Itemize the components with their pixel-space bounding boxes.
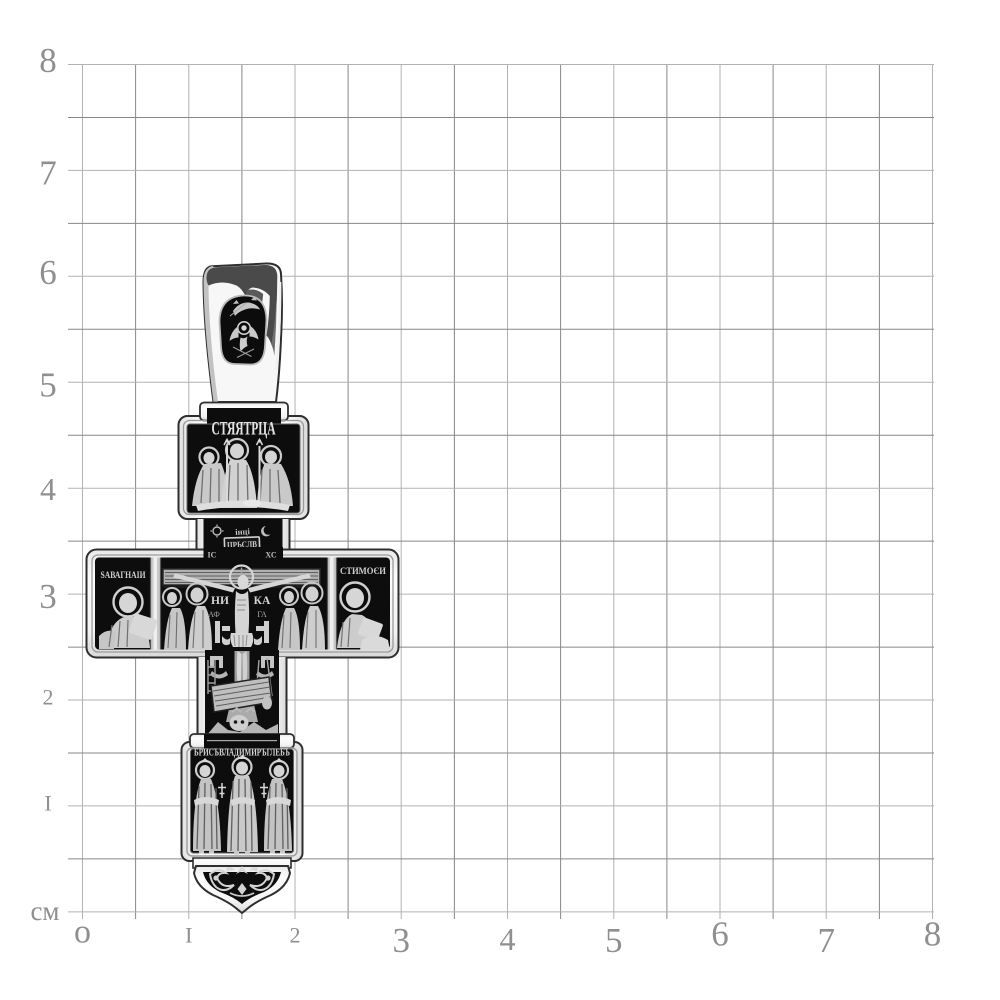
svg-text:o: o (74, 914, 91, 951)
svg-text:інці: інці (235, 526, 251, 537)
svg-text:3: 3 (392, 921, 410, 960)
svg-text:НИ: НИ (211, 595, 229, 607)
svg-text:ГА: ГА (257, 610, 267, 619)
svg-text:5: 5 (605, 921, 623, 960)
svg-text:АФ: АФ (208, 610, 220, 619)
svg-text:7: 7 (39, 153, 57, 192)
svg-text:8: 8 (39, 41, 57, 80)
svg-text:7: 7 (817, 921, 835, 960)
svg-text:см: см (30, 896, 59, 926)
svg-text:ХС: ХС (265, 551, 276, 560)
svg-text:3: 3 (39, 577, 57, 616)
svg-text:6: 6 (39, 253, 57, 292)
svg-text:8: 8 (924, 915, 942, 954)
svg-text:2: 2 (43, 685, 54, 710)
svg-text:6: 6 (711, 915, 729, 954)
svg-text:4: 4 (500, 921, 516, 957)
svg-text:КА: КА (254, 595, 271, 607)
svg-text:ІС: ІС (208, 551, 217, 560)
svg-text:2: 2 (290, 923, 301, 948)
svg-text:ЅАВАГНАІИ: ЅАВАГНАІИ (101, 570, 146, 580)
svg-text:СТИМОЄИ: СТИМОЄИ (340, 566, 386, 576)
svg-text:5: 5 (39, 365, 57, 404)
svg-text:I: I (185, 923, 192, 948)
svg-text:СТЯЯТРЦА: СТЯЯТРЦА (212, 420, 276, 440)
svg-text:4: 4 (40, 471, 56, 507)
svg-text:I: I (44, 790, 51, 815)
